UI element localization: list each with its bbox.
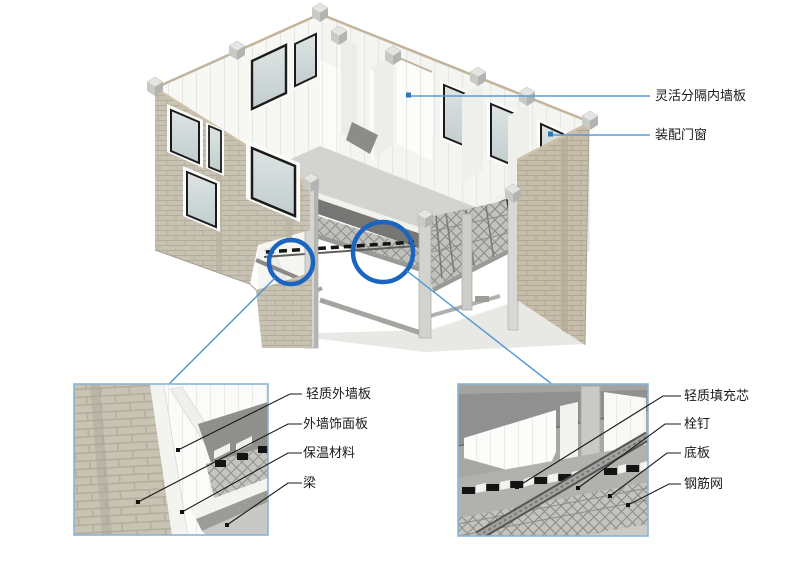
prefab-building-diagram: 灵活分隔内墙板 装配门窗 轻质外墙板 外墙饰面板 保温材料 梁 轻质填充芯 栓钉… (0, 0, 800, 565)
window (206, 122, 224, 176)
building-axonometric (147, 3, 598, 352)
detail-right-label-bottom-plate: 底板 (684, 446, 710, 461)
detail-right-label-filling-core: 轻质填充芯 (684, 389, 749, 404)
detail-box-left (74, 384, 269, 535)
callout-label-partition-wall: 灵活分隔内墙板 (655, 89, 746, 104)
detail-left-label-beam: 梁 (303, 476, 316, 491)
diagram-artwork (0, 0, 800, 565)
callout-label-doors-windows: 装配门窗 (655, 128, 707, 143)
detail-left-label-facade-panel: 外墙饰面板 (303, 417, 368, 432)
detail-right-label-stud: 栓钉 (684, 417, 710, 432)
detail-left-label-insulation: 保温材料 (303, 446, 355, 461)
detail-box-right (458, 384, 648, 556)
detail-right-label-rebar-mesh: 钢筋网 (684, 477, 723, 492)
detail-left-label-exterior-panel: 轻质外墙板 (306, 387, 371, 402)
